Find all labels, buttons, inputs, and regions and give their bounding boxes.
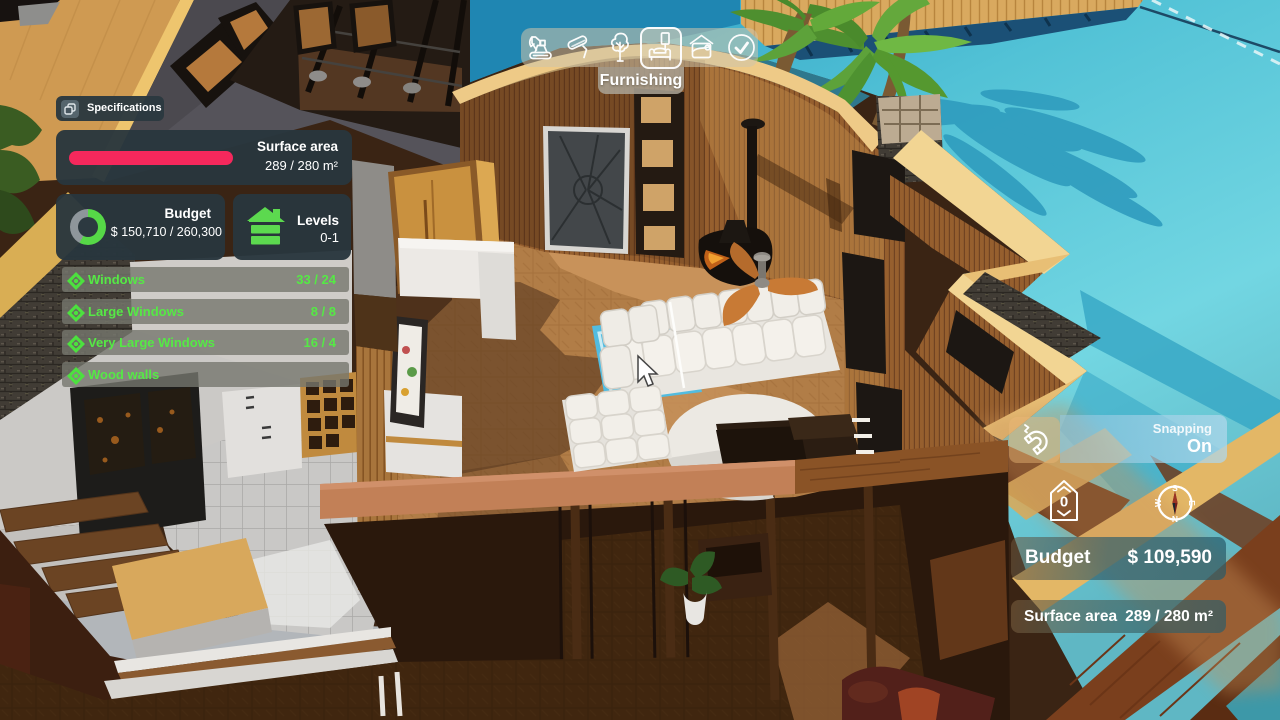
svg-text:S: S xyxy=(1172,483,1178,493)
svg-text:W: W xyxy=(1153,498,1163,507)
svg-text:0: 0 xyxy=(1060,494,1068,511)
svg-text:E: E xyxy=(1187,500,1197,506)
svg-text:N: N xyxy=(1172,514,1178,524)
